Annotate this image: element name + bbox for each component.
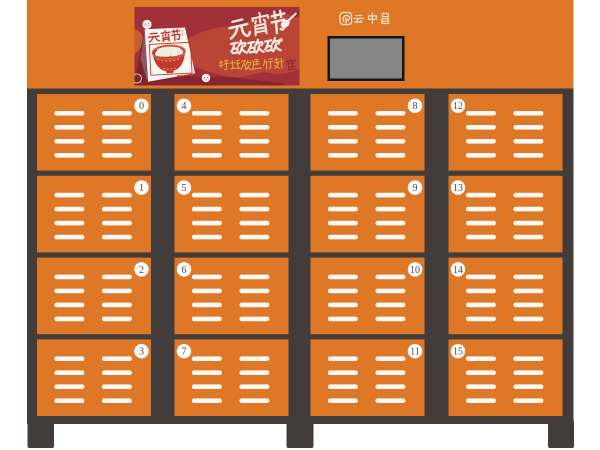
svg-text:8: 8 xyxy=(413,101,418,112)
svg-text:14: 14 xyxy=(453,265,463,276)
svg-text:4: 4 xyxy=(182,101,187,112)
svg-text:13: 13 xyxy=(453,183,463,194)
svg-text:6: 6 xyxy=(182,265,187,276)
svg-text:1: 1 xyxy=(139,183,144,194)
svg-text:15: 15 xyxy=(453,347,463,358)
svg-text:2: 2 xyxy=(139,265,144,276)
svg-text:10: 10 xyxy=(410,265,420,276)
svg-text:5: 5 xyxy=(182,183,187,194)
svg-text:12: 12 xyxy=(453,101,463,112)
svg-text:0: 0 xyxy=(139,101,144,112)
svg-text:7: 7 xyxy=(182,347,187,358)
svg-text:11: 11 xyxy=(410,347,420,358)
svg-text:3: 3 xyxy=(139,347,144,358)
svg-text:9: 9 xyxy=(413,183,418,194)
